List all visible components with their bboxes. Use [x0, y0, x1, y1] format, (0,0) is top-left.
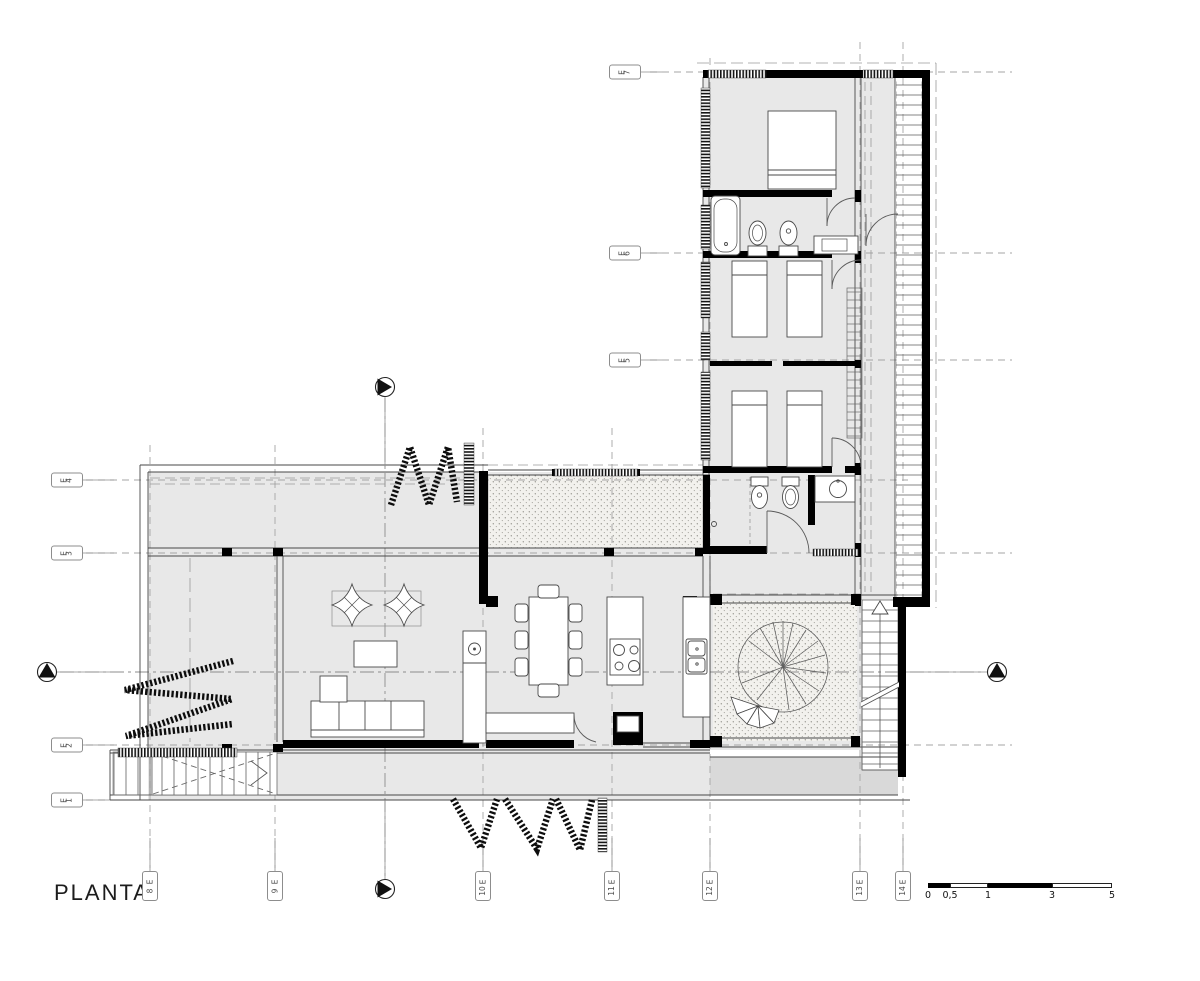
kitchen-island-icon: [607, 597, 643, 685]
scale-segment: [950, 883, 988, 888]
section-marker-icon: [38, 663, 57, 682]
dining-table-icon: [529, 597, 568, 685]
section-marker-icon: [376, 880, 395, 899]
chair-icon: [515, 604, 528, 622]
scale-tick: 1: [985, 890, 991, 901]
chair-icon: [569, 604, 582, 622]
scale-segment: [928, 883, 950, 888]
north-courtyard-gravel: [488, 475, 703, 548]
scale-bar: 0 0,5 1 3 5: [928, 883, 1114, 903]
grid-label-e4: E4: [51, 473, 83, 488]
master-bedroom: [768, 111, 836, 189]
counter-icon: [683, 597, 710, 717]
bathtub-icon: [711, 196, 740, 255]
toilet-icon: [782, 477, 799, 486]
scale-segment: [988, 883, 1052, 888]
grid-label-e3: E3: [51, 546, 83, 561]
grid-label-e14: E14: [895, 871, 911, 901]
folding-door-icon: [505, 799, 553, 849]
bidet-icon: [751, 477, 768, 486]
single-bed-icon: [732, 391, 767, 467]
scale-tick: 3: [1049, 890, 1055, 901]
sofa-chaise-icon: [320, 676, 347, 702]
single-bed-icon: [732, 261, 767, 337]
scale-segment: [1052, 883, 1112, 888]
floor-plan-canvas: PLANTA E4 E3 E2 E1 E7 E6 E5 E8 E9 E10 E1…: [0, 0, 1200, 981]
chair-icon: [569, 658, 582, 676]
section-marker-icon: [988, 663, 1007, 682]
grid-label-e1: E1: [51, 793, 83, 808]
chair-icon: [515, 658, 528, 676]
chair-icon: [569, 631, 582, 649]
grid-label-e11: E11: [604, 871, 620, 901]
single-bed-icon: [787, 261, 822, 337]
scale-tick: 5: [1109, 890, 1115, 901]
grid-label-e2: E2: [51, 738, 83, 753]
oven-icon: [617, 716, 639, 732]
toilet-icon: [748, 246, 767, 256]
grid-label-e7: E7: [609, 65, 641, 80]
single-bed-icon: [787, 391, 822, 467]
section-marker-icon: [376, 378, 395, 397]
grid-label-e8: E8: [142, 871, 158, 901]
vanity-icon: [815, 476, 855, 502]
scale-tick: 0,5: [942, 890, 957, 901]
grid-label-e13: E13: [852, 871, 868, 901]
grid-label-e12: E12: [702, 871, 718, 901]
louver-screen: [896, 80, 922, 597]
scale-tick: 0: [925, 890, 931, 901]
chair-icon: [538, 585, 559, 598]
grid-label-e6: E6: [609, 246, 641, 261]
lower-counter-icon: [486, 713, 574, 733]
bidet-icon: [779, 246, 798, 256]
chair-icon: [538, 684, 559, 697]
folding-door-icon: [453, 799, 497, 848]
sofa-icon: [311, 701, 424, 737]
coffee-table-icon: [354, 641, 397, 667]
chair-icon: [515, 631, 528, 649]
floor-plan-drawing: [0, 0, 1200, 981]
grid-label-e10: E10: [475, 871, 491, 901]
page-title: PLANTA: [54, 880, 150, 906]
grid-label-e9: E9: [267, 871, 283, 901]
double-bed-icon: [768, 111, 836, 189]
grid-label-e5: E5: [609, 353, 641, 368]
folding-door-icon: [556, 799, 592, 850]
